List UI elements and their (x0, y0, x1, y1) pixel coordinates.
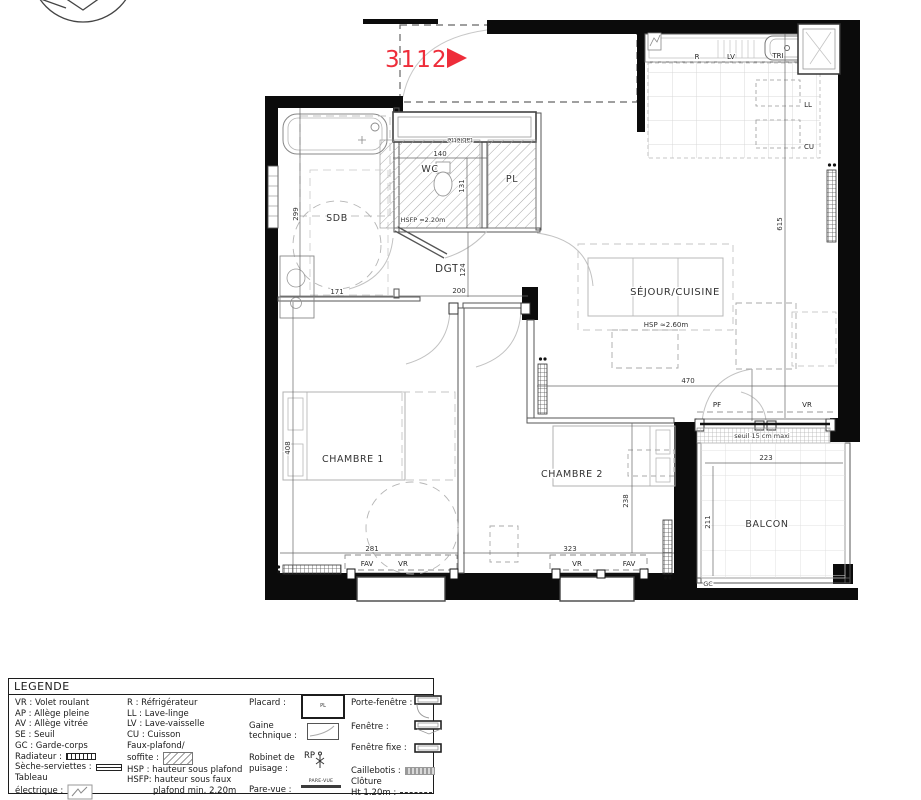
dim-ch1-w: 281 (365, 545, 378, 553)
dim-balcon-w: 223 (759, 454, 772, 462)
legend-item-robinet: Robinet de (249, 753, 349, 764)
legend-item: HSP : hauteur sous plafond (127, 765, 247, 776)
dim-ch2-w: 323 (563, 545, 576, 553)
legend-item: plafond min. 2.20m (127, 786, 247, 797)
compass-rose-icon (31, 0, 135, 22)
grating-icon (405, 767, 435, 775)
appliance-r: R (695, 53, 700, 61)
legend-item: R : Réfrigérateur (127, 698, 247, 709)
dim-balcon-h: 211 (704, 515, 712, 528)
dim-wc-w: 140 (433, 150, 446, 158)
opening-vr-ch2: VR (572, 560, 582, 568)
note-seuil: seuil 15 cm maxi (734, 432, 790, 440)
tap-symbol-icon: RP (304, 751, 325, 769)
appliance-cu: CU (804, 143, 814, 151)
legend-box: LEGENDE VR : Volet roulant AP : Allège p… (8, 678, 434, 794)
door-swings (349, 231, 766, 421)
legend-column-3: Placard : Gaine technique : Robinet de p… (249, 698, 349, 795)
towel-dryer-icon (96, 764, 122, 771)
appliance-ll: LL (804, 101, 812, 109)
legend-item-puisage: puisage : (249, 764, 349, 775)
legend-item-radiateur: Radiateur : (15, 752, 127, 763)
legend-item: VR : Volet roulant (15, 698, 127, 709)
dim-sejour-w: 470 (681, 377, 694, 385)
legend-item: SE : Seuil (15, 730, 127, 741)
soffit-hatch-icon (163, 752, 193, 765)
room-label-chambre1: CHAMBRE 1 (322, 454, 384, 465)
legend-item: AV : Allège vitrée (15, 719, 127, 730)
fixed-window-legend-icon (413, 742, 445, 754)
window-icon (413, 719, 445, 737)
legend-item-caillebotis: Caillebotis : (351, 766, 446, 777)
room-label-pl: PL (506, 174, 518, 185)
dim-sdb-h: 299 (292, 207, 300, 220)
tap-glyph-icon (315, 751, 325, 769)
note-tablette: tablette (447, 136, 473, 144)
radiator-icon (66, 753, 96, 760)
opening-vr-sejour: VR (802, 401, 812, 409)
legend-item: GC : Garde-corps (15, 741, 127, 752)
fence-icon (400, 792, 432, 793)
room-label-dgt: DGT (435, 263, 459, 275)
room-label-balcon: BALCON (745, 519, 788, 530)
legend-item-soffite: soffite : (127, 752, 247, 765)
appliance-tri: TRI (771, 52, 783, 60)
room-label-sejour: SÉJOUR/CUISINE (630, 285, 720, 298)
dim-wc-h: 131 (458, 179, 466, 192)
dim-dgt-w: 200 (452, 287, 465, 295)
legend-column-1: VR : Volet roulant AP : Allège pleine AV… (15, 698, 127, 800)
electrical-panel-icon (67, 784, 93, 800)
unit-direction-arrow-icon (447, 48, 467, 68)
room-label-sdb: SDB (326, 213, 348, 224)
legend-column-2: R : Réfrigérateur LL : Lave-linge LV : L… (127, 698, 247, 797)
legend-item-cloture: Clôture (351, 777, 446, 788)
unit-number: 3112 (385, 47, 448, 73)
room-label-wc: WC (421, 164, 438, 175)
dim-ch2-h: 238 (622, 494, 630, 507)
opening-fav-ch1: FAV (361, 560, 374, 568)
floor-plan-page: SDB WC PL DGT SÉJOUR/CUISINE CHAMBRE 1 C… (0, 0, 921, 800)
legend-item-seche-serviettes: Sèche-serviettes : (15, 762, 127, 773)
legend-item-cloture-ht: Ht 1.20m : (351, 788, 446, 799)
note-gc: GC (703, 580, 713, 588)
legend-item-electrique: électrique : (15, 784, 127, 800)
opening-fav-ch2: FAV (623, 560, 636, 568)
opening-vr-ch1: VR (398, 560, 408, 568)
legend-column-4: Porte-fenêtre : Fenêtre : Fenêtre fixe :… (351, 698, 446, 798)
french-door-icon (413, 694, 445, 720)
note-hsp: HSP ≈2.60m (644, 321, 689, 329)
dim-sdb-w: 171 (330, 288, 343, 296)
legend-item: LV : Lave-vaisselle (127, 719, 247, 730)
fixed-window-icon (798, 24, 840, 74)
legend-item: CU : Cuisson (127, 730, 247, 741)
legend-item: HSFP: hauteur sous faux (127, 775, 247, 786)
legend-item: Faux-plafond/ (127, 741, 247, 752)
balcony (697, 428, 845, 578)
legend-item: AP : Allège pleine (15, 709, 127, 720)
closet-symbol-icon: PL (301, 694, 345, 719)
note-hsfp: HSFP ≈2.20m (401, 216, 446, 224)
legend-title: LEGENDE (9, 679, 433, 695)
dim-dgt-h: 124 (459, 263, 467, 277)
pare-vue-icon: PARE-VUE (301, 779, 341, 788)
dim-sejour-h: 615 (776, 217, 784, 230)
legend-item-tableau: Tableau (15, 773, 127, 784)
dim-ch1-h: 408 (284, 441, 292, 454)
appliance-lv: LV (727, 53, 735, 61)
technical-duct-icon (307, 723, 339, 740)
opening-pf: PF (713, 401, 721, 409)
legend-item: LL : Lave-linge (127, 709, 247, 720)
room-label-chambre2: CHAMBRE 2 (541, 469, 603, 480)
